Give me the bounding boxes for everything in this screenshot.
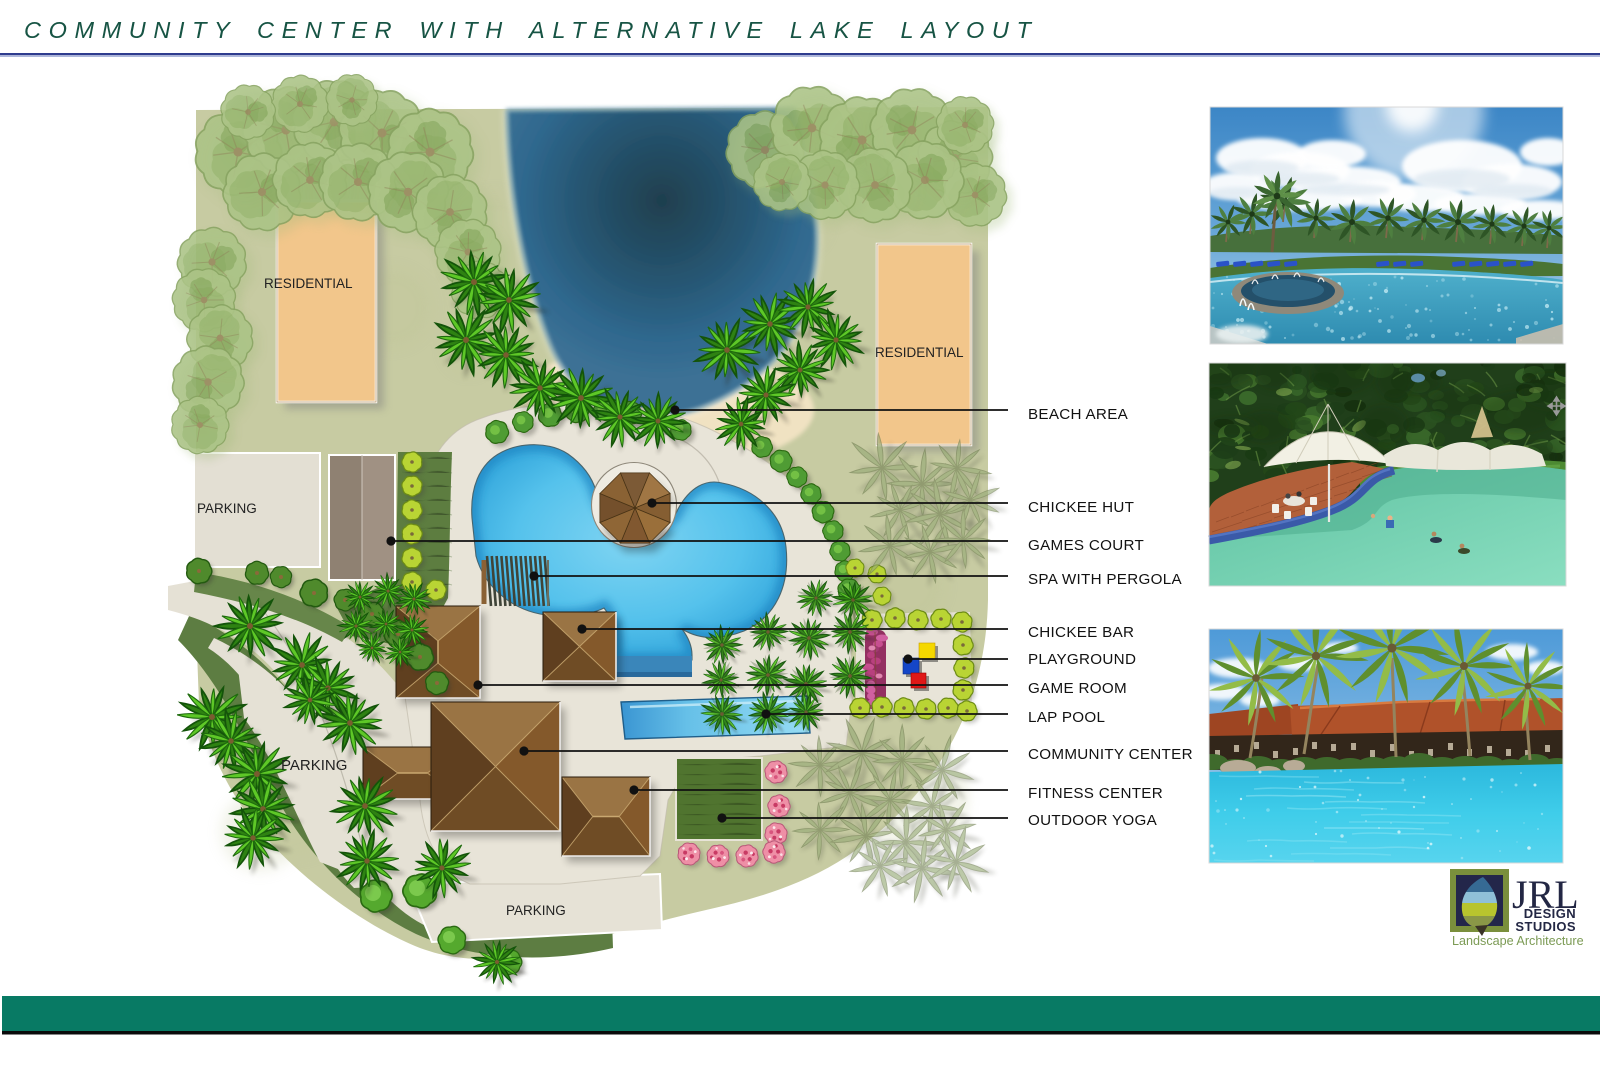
- svg-text:GAME ROOM: GAME ROOM: [1028, 680, 1127, 697]
- svg-text:CHICKEE HUT: CHICKEE HUT: [1028, 499, 1134, 516]
- svg-text:PARKING: PARKING: [506, 903, 566, 918]
- svg-text:SPA WITH PERGOLA: SPA WITH PERGOLA: [1028, 571, 1182, 588]
- svg-text:BEACH AREA: BEACH AREA: [1028, 406, 1129, 423]
- svg-text:OUTDOOR YOGA: OUTDOOR YOGA: [1028, 812, 1158, 829]
- svg-text:STUDIOS: STUDIOS: [1515, 919, 1576, 934]
- svg-text:Landscape Architecture: Landscape Architecture: [1452, 934, 1584, 948]
- svg-text:GAMES COURT: GAMES COURT: [1028, 537, 1144, 554]
- svg-text:PLAYGROUND: PLAYGROUND: [1028, 651, 1136, 668]
- svg-text:PARKING: PARKING: [197, 501, 257, 516]
- svg-text:PARKING: PARKING: [281, 757, 347, 774]
- svg-text:COMMUNITY CENTER: COMMUNITY CENTER: [1028, 746, 1193, 763]
- svg-text:CHICKEE BAR: CHICKEE BAR: [1028, 624, 1134, 641]
- svg-text:RESIDENTIAL: RESIDENTIAL: [264, 276, 353, 291]
- svg-text:FITNESS CENTER: FITNESS CENTER: [1028, 785, 1163, 802]
- svg-text:COMMUNITY CENTER WITH ALTERNAT: COMMUNITY CENTER WITH ALTERNATIVE LAKE L…: [24, 17, 1038, 43]
- svg-text:LAP POOL: LAP POOL: [1028, 709, 1105, 726]
- svg-text:RESIDENTIAL: RESIDENTIAL: [875, 345, 964, 360]
